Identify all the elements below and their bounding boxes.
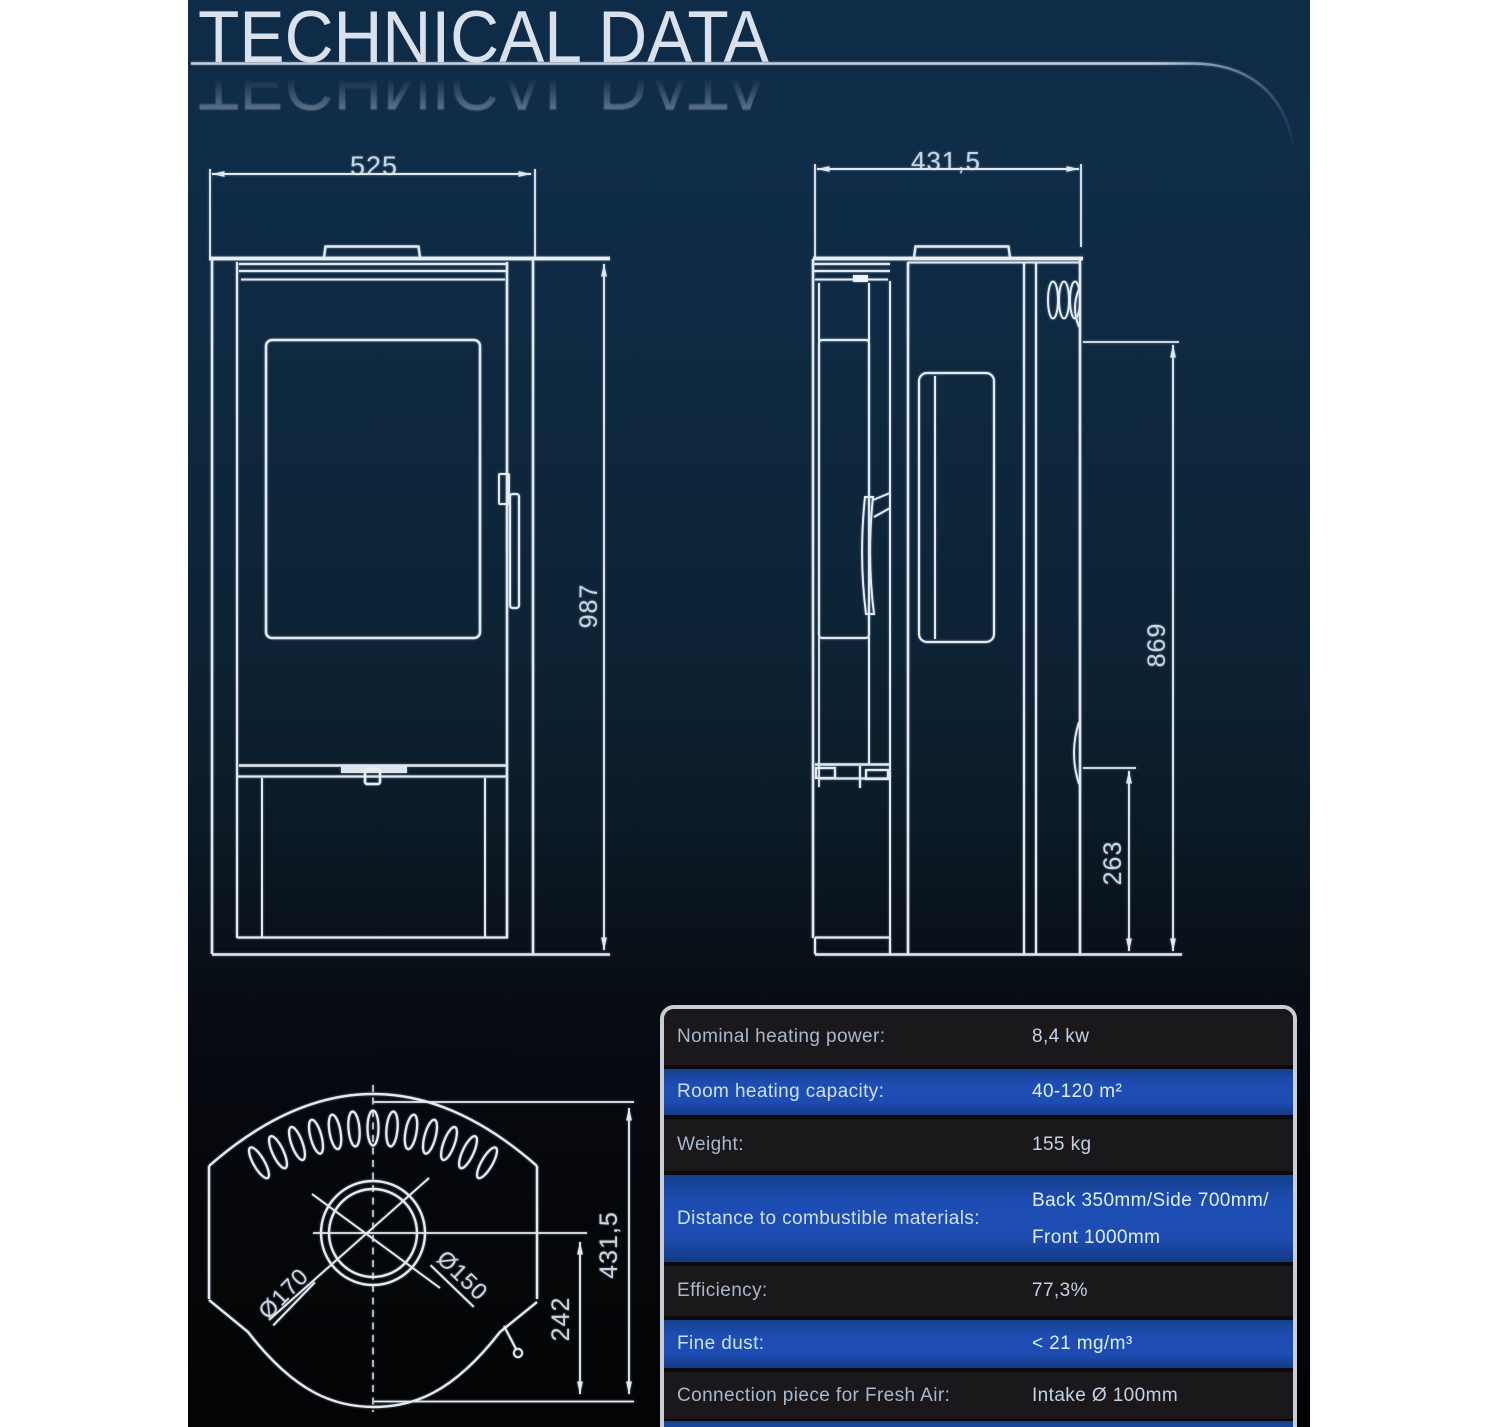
svg-text:987: 987: [575, 584, 603, 629]
svg-text:263: 263: [1099, 841, 1127, 886]
svg-text:525: 525: [350, 151, 398, 181]
svg-text:869: 869: [1143, 623, 1171, 668]
svg-text:242: 242: [547, 1297, 575, 1342]
svg-text:431,5: 431,5: [911, 146, 981, 176]
svg-text:431,5: 431,5: [595, 1211, 623, 1279]
